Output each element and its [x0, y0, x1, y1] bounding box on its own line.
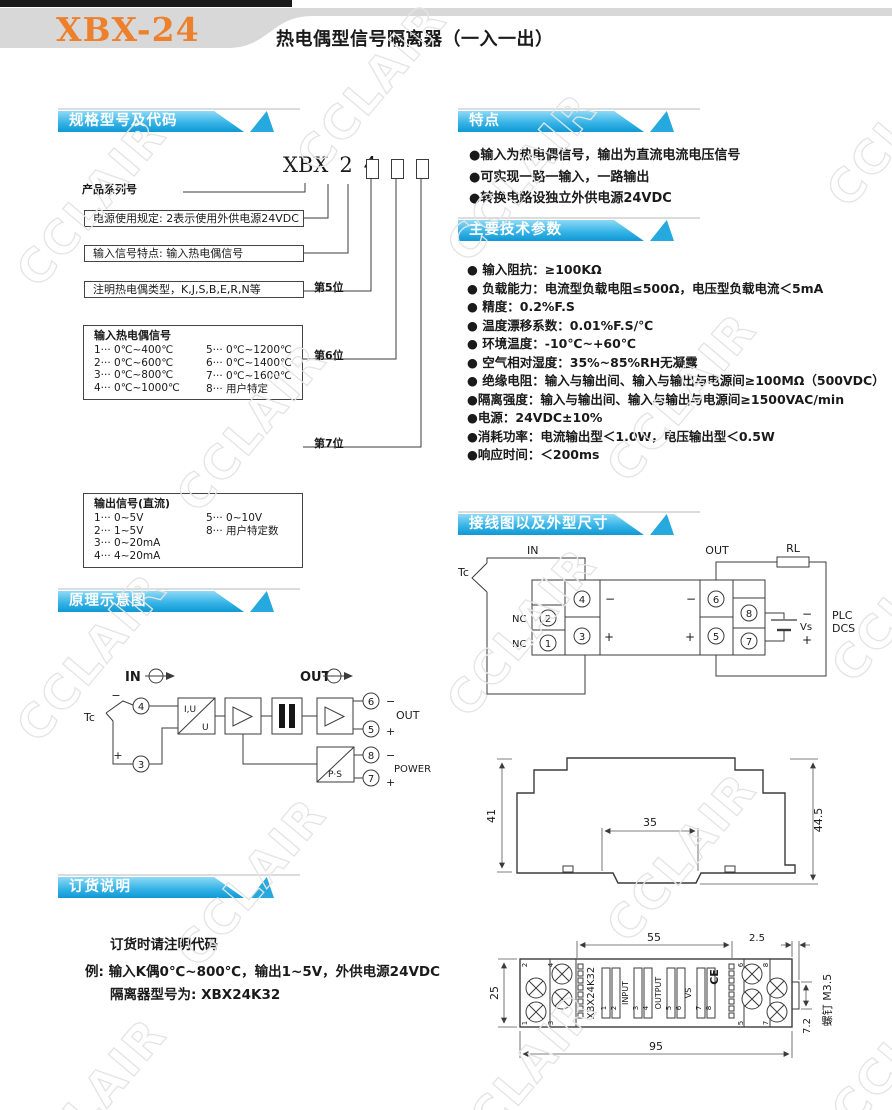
minus-sign: − [111, 689, 120, 702]
section-title-params: 主要技术参数 [458, 220, 644, 241]
principle-out-port: OUT [396, 709, 420, 722]
top-black-bar [0, 0, 292, 7]
svg-text:8: 8 [762, 963, 770, 967]
side-tab [792, 982, 799, 1009]
terminal-5-num: 5 [713, 632, 719, 643]
minus-sign: − [386, 695, 395, 708]
vs-column-label: VS [684, 988, 693, 999]
ordering-example: 例: 输入K偶0℃~800℃，输出1~5V，外供电源24VDC [85, 960, 440, 980]
wiring-out-label: OUT [705, 544, 729, 557]
param-item: ● 负载能力：电流型负载电阻≤500Ω，电压型负载电流＜5mA [467, 280, 885, 299]
ce-mark: CE [708, 969, 721, 985]
param-item: ●隔离强度：输入与输出间、输入与输出与电源间≥1500VAC/min [467, 391, 885, 410]
param-item: ● 精度：0.2%F.S [467, 298, 885, 317]
svg-text:7: 7 [695, 1006, 703, 1010]
section-title-ordering: 订货说明 [58, 877, 244, 898]
model-code: XBX24 [283, 153, 377, 177]
svg-text:1: 1 [600, 1006, 608, 1010]
code-placeholder-box-6 [391, 159, 404, 179]
ordering-note: 订货时请注明代码 [110, 933, 218, 953]
input-signal-box: 输入热电偶信号 1··· 0℃~400℃ 2··· 0℃~600℃ 3··· 0… [83, 325, 303, 400]
terminal-6-num: 6 [368, 697, 374, 708]
input-column-label: INPUT [621, 981, 630, 1005]
section-title-principle: 原理示意图 [58, 591, 244, 612]
param-item: ● 环境温度：-10℃~+60℃ [467, 335, 885, 354]
model-prefix: XBX [283, 153, 328, 177]
pos6-label: 第6位 [314, 347, 344, 363]
product-logo: XBX-24 [56, 10, 200, 49]
input-range-4: 4··· 0℃~1000℃ [94, 382, 302, 395]
param-item: ●消耗功率：电流输出型＜1.0W，电压输出型＜0.5W [467, 428, 885, 447]
section-bar-tip [250, 111, 274, 132]
series-label: 产品系列号 [82, 181, 137, 197]
principle-diagram: IN OUT Tc − + 4 3 I,U U [83, 669, 431, 789]
minus-sign: − [802, 607, 812, 621]
transformer-block [272, 698, 302, 734]
section-bar-principle: 原理示意图 [58, 591, 278, 612]
param-item: ● 输入阻抗：≥100KΩ [467, 261, 885, 280]
param-item: ● 绝缘电阻：输入与输出间、输入与输出与电源间≥100MΩ（500VDC） [467, 372, 885, 391]
output-range-3: 3··· 0~20mA [94, 537, 302, 550]
input-range-6: 6··· 0℃~1400℃ [206, 357, 292, 370]
code-placeholder-box-5 [366, 159, 379, 179]
svg-text:6: 6 [737, 962, 745, 967]
dim-height-right: 44.5 [812, 808, 825, 833]
section-bar-tip [650, 111, 674, 132]
plus-sign: + [685, 630, 695, 644]
section-title-spec: 规格型号及代码 [58, 111, 244, 132]
section-title-wiring: 接线图以及外型尺寸 [458, 514, 644, 535]
nc-label-top: NC [512, 614, 526, 625]
principle-tc-label: Tc [83, 711, 95, 724]
thermocouple-icon [106, 701, 133, 713]
plus-sign: + [604, 630, 614, 644]
svg-text:5: 5 [737, 1021, 745, 1025]
output-signal-box: 输出信号(直流) 1··· 0~5V 2··· 1~5V 3··· 0~20mA… [83, 493, 303, 568]
section-bar-params: 主要技术参数 [458, 220, 678, 241]
param-item: ●电源：24VDC±10% [467, 409, 885, 428]
output-range-4: 4··· 4~20mA [94, 550, 302, 563]
svg-text:4: 4 [642, 1005, 650, 1010]
terminal-4-num: 4 [579, 595, 585, 606]
wiring-diagram: Tc IN NC NC 2 1 4 3 − + 6 5 − + [457, 542, 855, 694]
ordering-model: 隔离器型号为: XBX24K32 [110, 983, 280, 1003]
plus-sign: + [386, 725, 395, 738]
input-range-8: 8··· 用户特定 [206, 383, 268, 396]
dim-depth: 25 [488, 986, 501, 1000]
svg-text:3: 3 [547, 1021, 555, 1025]
param-item: ●响应时间：＜200ms [467, 446, 885, 465]
vs-label: Vs [800, 622, 812, 633]
rl-label: RL [786, 542, 801, 555]
dim-rail-width: 35 [643, 816, 657, 829]
terminal-7-num: 7 [746, 637, 752, 648]
param-item: ● 空气相对湿度：35%~85%RH无凝露 [467, 354, 885, 373]
power-rule-box: 电源使用规定: 2表示使用外供电源24VDC [84, 210, 304, 227]
dim-tab-height: 7.2 [802, 1018, 813, 1034]
iu-top-label: I,U [184, 705, 196, 715]
minus-sign: − [686, 592, 696, 606]
svg-text:2: 2 [610, 1006, 618, 1010]
section-bar-tip [650, 220, 674, 241]
svg-text:1: 1 [521, 1021, 529, 1025]
plus-sign: + [113, 749, 122, 762]
features-list: ●输入为热电偶信号，输出为直流电流电压信号 ●可实现一路一输入，一路输出 ●转换… [469, 145, 740, 210]
terminal-3-num: 3 [138, 760, 144, 771]
output-column-label: OUTPUT [654, 977, 663, 1010]
principle-power-port: POWER [394, 764, 431, 775]
section-bar-wiring: 接线图以及外型尺寸 [458, 514, 678, 535]
feature-item: ●可实现一路一输入，一路输出 [469, 167, 740, 189]
dim-width-center: 55 [647, 931, 661, 944]
nc-label-bottom: NC [512, 639, 526, 650]
top-view-drawing: XBX24K32 INPUT OUTPUT VS CE 1 2 3 4 5 6 … [488, 931, 834, 1058]
datasheet-page: XBX-24 热电偶型信号隔离器（一入一出） 规格型号及代码 特点 主要技术参数… [0, 0, 892, 1110]
svg-text:8: 8 [705, 1006, 713, 1010]
page-title: 热电偶型信号隔离器（一入一出） [276, 25, 554, 51]
output-range-5: 5··· 0~10V [206, 512, 262, 525]
output-range-8: 8··· 用户特定数 [206, 525, 279, 538]
dcs-label: DCS [832, 622, 855, 635]
section-bar-spec: 规格型号及代码 [58, 111, 278, 132]
plus-sign: + [802, 633, 812, 647]
terminal-8-num: 8 [746, 609, 752, 620]
in-arrow-icon [166, 672, 175, 680]
rl-resistor [777, 557, 809, 567]
section-bar-tip [250, 877, 274, 898]
input-range-5: 5··· 0℃~1200℃ [206, 344, 292, 357]
input-range-7: 7··· 0℃~1600℃ [206, 370, 292, 383]
plus-sign: + [386, 776, 395, 789]
section-title-features: 特点 [458, 111, 644, 132]
terminal-2-num: 2 [545, 614, 551, 625]
dim-width-total: 95 [649, 1040, 663, 1053]
terminal-4-num: 4 [138, 702, 144, 713]
amplifier-block-2 [317, 698, 353, 734]
side-view-drawing: 35 41 44.5 [485, 758, 825, 884]
svg-text:4: 4 [547, 962, 555, 967]
svg-text:3: 3 [632, 1006, 640, 1010]
input-rule-box: 输入信号特点: 输入热电偶信号 [84, 245, 304, 262]
param-item: ● 温度漂移系数：0.01%F.S/℃ [467, 317, 885, 336]
pos5-label: 第5位 [314, 279, 344, 295]
output-range-1: 1··· 0~5V [94, 512, 302, 525]
pos7-label: 第7位 [314, 435, 344, 451]
model-digit-power: 2 [339, 153, 352, 177]
feature-item: ●输入为热电偶信号，输出为直流电流电压信号 [469, 145, 740, 167]
minus-sign: − [605, 592, 615, 606]
svg-text:5: 5 [665, 1006, 673, 1010]
code-placeholder-box-7 [416, 159, 429, 179]
terminal-8-num: 8 [368, 751, 374, 762]
section-bar-tip [650, 514, 674, 535]
amplifier-block-1 [225, 698, 261, 734]
wiring-tc-label: Tc [457, 566, 469, 579]
section-bar-features: 特点 [458, 111, 678, 132]
iu-bottom-label: U [202, 723, 209, 733]
tc-type-rule-box: 注明热电偶类型，K,J,S,B,E,R,N等 [84, 281, 304, 298]
output-signal-title: 输出信号(直流) [94, 498, 302, 511]
wiring-in-label: IN [527, 544, 538, 557]
thermocouple-icon [472, 563, 487, 592]
input-signal-title: 输入热电偶信号 [94, 330, 302, 343]
feature-item: ●转换电路设独立外供电源24VDC [469, 188, 740, 210]
principle-out-label: OUT [300, 670, 331, 685]
svg-text:2: 2 [521, 963, 529, 967]
section-bar-tip [250, 591, 274, 612]
out-arrow-icon [344, 672, 353, 680]
dim-tab-width: 2.5 [749, 933, 765, 944]
principle-in-label: IN [125, 670, 141, 685]
terminal-5-num: 5 [368, 725, 374, 736]
terminal-7-num: 7 [368, 774, 374, 785]
svg-text:6: 6 [675, 1005, 683, 1010]
svg-text:7: 7 [762, 1021, 770, 1025]
terminal-1-num: 1 [545, 639, 551, 650]
minus-sign: − [386, 749, 395, 762]
top-view-model-label: XBX24K32 [586, 967, 597, 1020]
plc-label: PLC [832, 609, 853, 622]
screw-note: 螺钉 M3.5 [821, 974, 834, 1026]
dim-height-left: 41 [485, 809, 498, 823]
section-bar-ordering: 订货说明 [58, 877, 278, 898]
ps-label: P·S [328, 770, 342, 780]
terminal-3-num: 3 [579, 632, 585, 643]
terminal-6-num: 6 [713, 595, 719, 606]
params-list: ● 输入阻抗：≥100KΩ ● 负载能力：电流型负载电阻≤500Ω，电压型负载电… [467, 261, 885, 465]
